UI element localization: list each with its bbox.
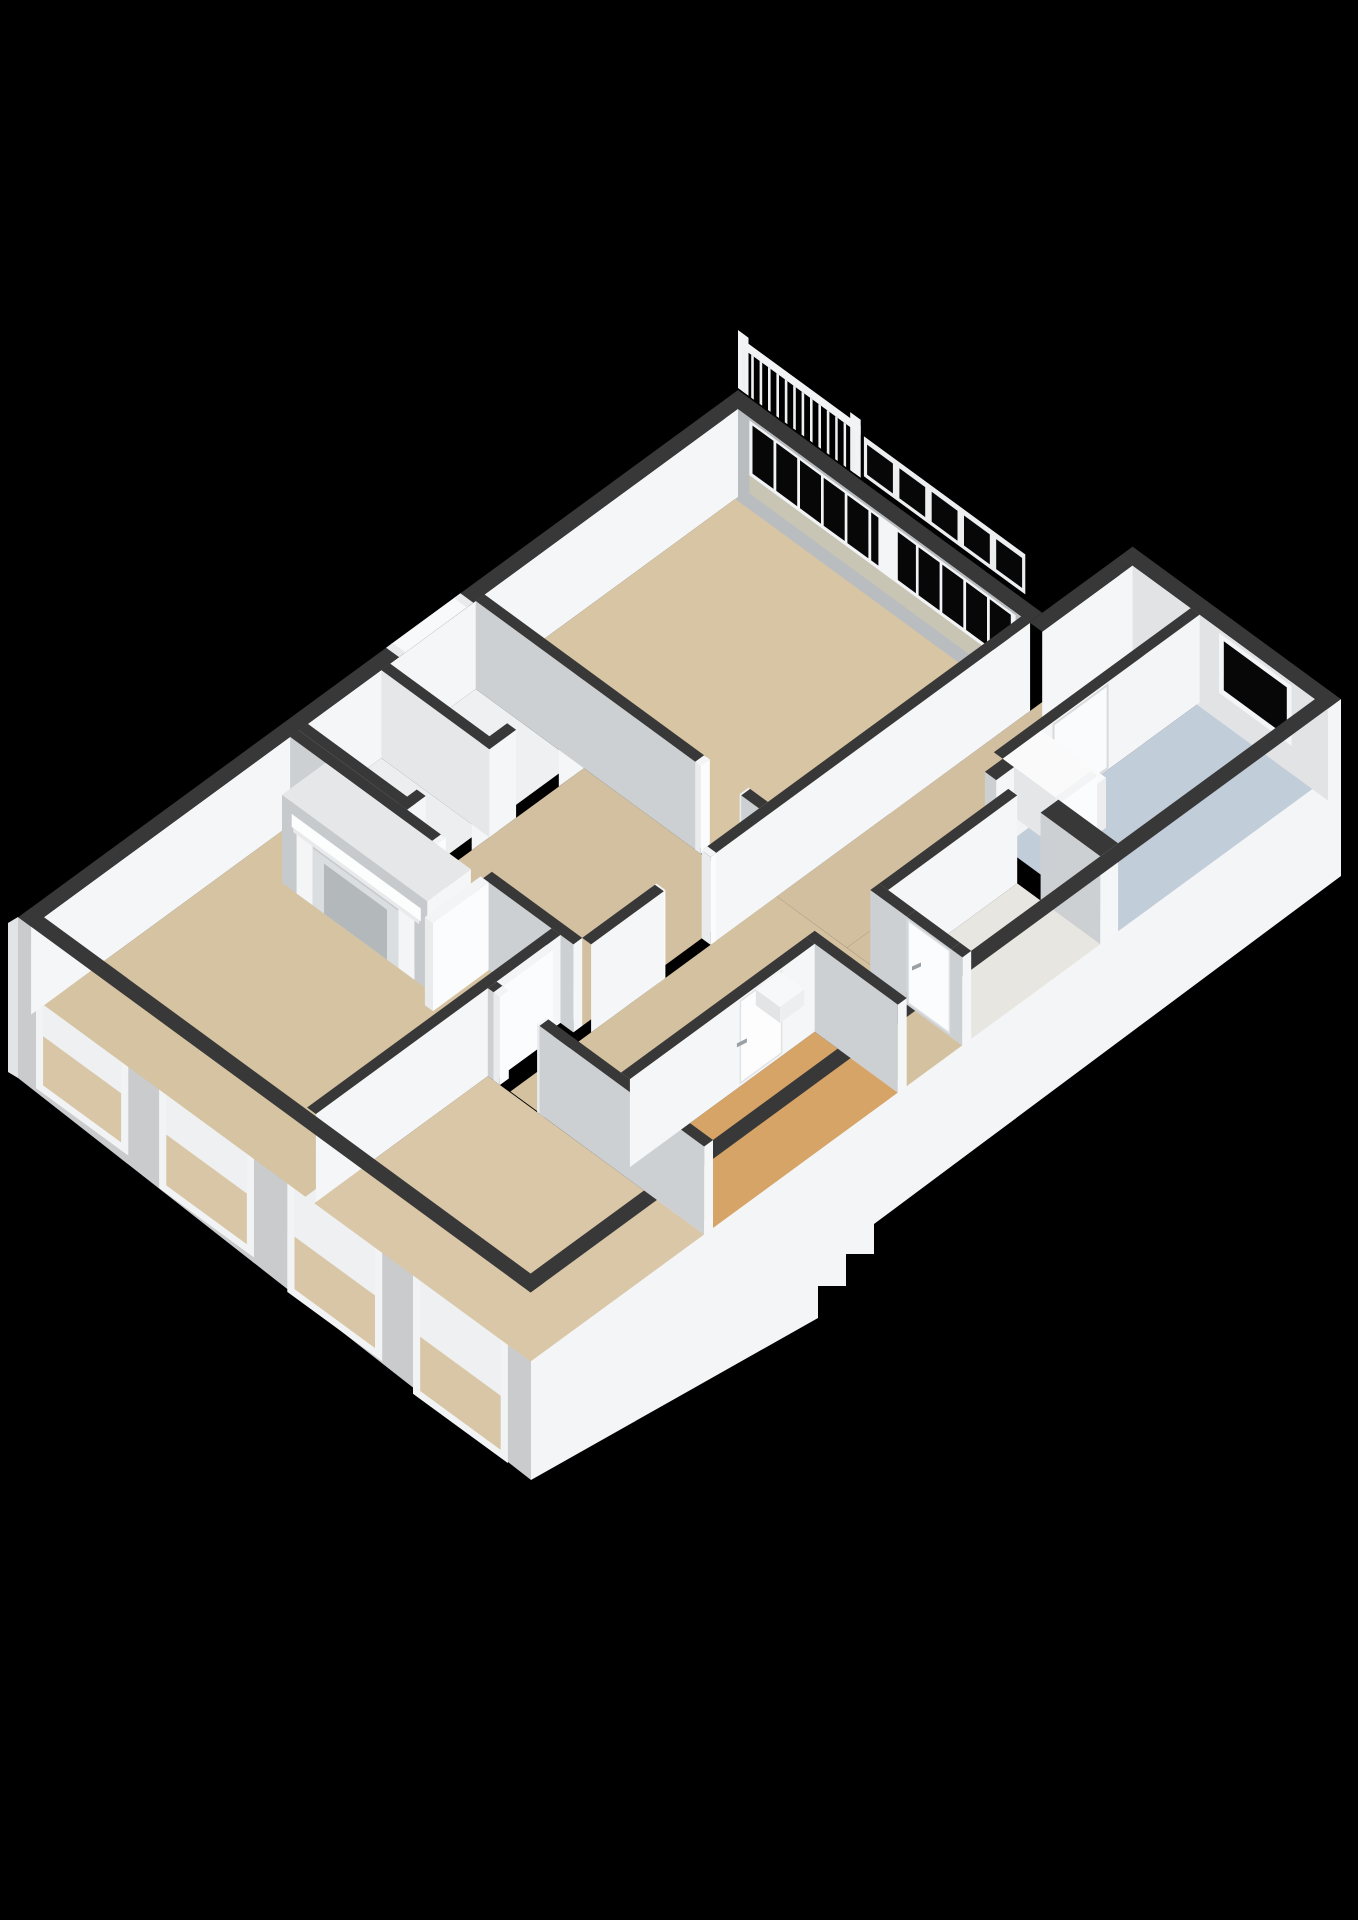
wall-closet-divider-face-se xyxy=(489,743,498,838)
door-fireplace-open-leaf-face-sw xyxy=(425,917,433,1011)
railing-baluster xyxy=(743,349,746,394)
floor-plan-3d-canvas xyxy=(0,0,1358,1920)
mantel-pilaster-left xyxy=(297,835,313,906)
railing-baluster xyxy=(776,373,779,418)
railing-baluster xyxy=(852,428,855,473)
railing-baluster xyxy=(827,410,830,455)
post-hall-door-1-face-se xyxy=(711,853,717,945)
post-bottom-door-1-face-sw xyxy=(494,992,500,1085)
post-living-door-1-face-se xyxy=(701,759,710,854)
post-living-door-1-face-sw xyxy=(695,762,701,854)
wall-wc-sw-b-face-sw xyxy=(951,949,962,1045)
railing-baluster xyxy=(844,422,847,467)
railing-baluster xyxy=(768,367,771,412)
post-hall-door-1-face-sw xyxy=(702,850,711,945)
wall-vestibule-s-b-face-se xyxy=(573,938,582,1033)
post-bottom-door-1-face-se xyxy=(500,991,509,1086)
railing-baluster xyxy=(835,416,838,461)
railing-baluster xyxy=(751,355,754,400)
floor-plan-stage xyxy=(0,0,1358,1920)
railing-baluster xyxy=(818,404,821,449)
wall-bottom-n-face-se xyxy=(704,1140,713,1235)
facade-nw-sliver xyxy=(8,917,18,1078)
wall-wc-sw-b-face-se xyxy=(962,951,971,1046)
railing-baluster xyxy=(785,379,788,424)
mantel-pilaster-right xyxy=(398,909,414,980)
railing-baluster xyxy=(802,392,805,437)
railing-baluster xyxy=(810,398,813,443)
wall-orange-n-face-se xyxy=(898,998,907,1093)
railing-baluster xyxy=(760,361,763,406)
railing-baluster xyxy=(793,385,796,430)
